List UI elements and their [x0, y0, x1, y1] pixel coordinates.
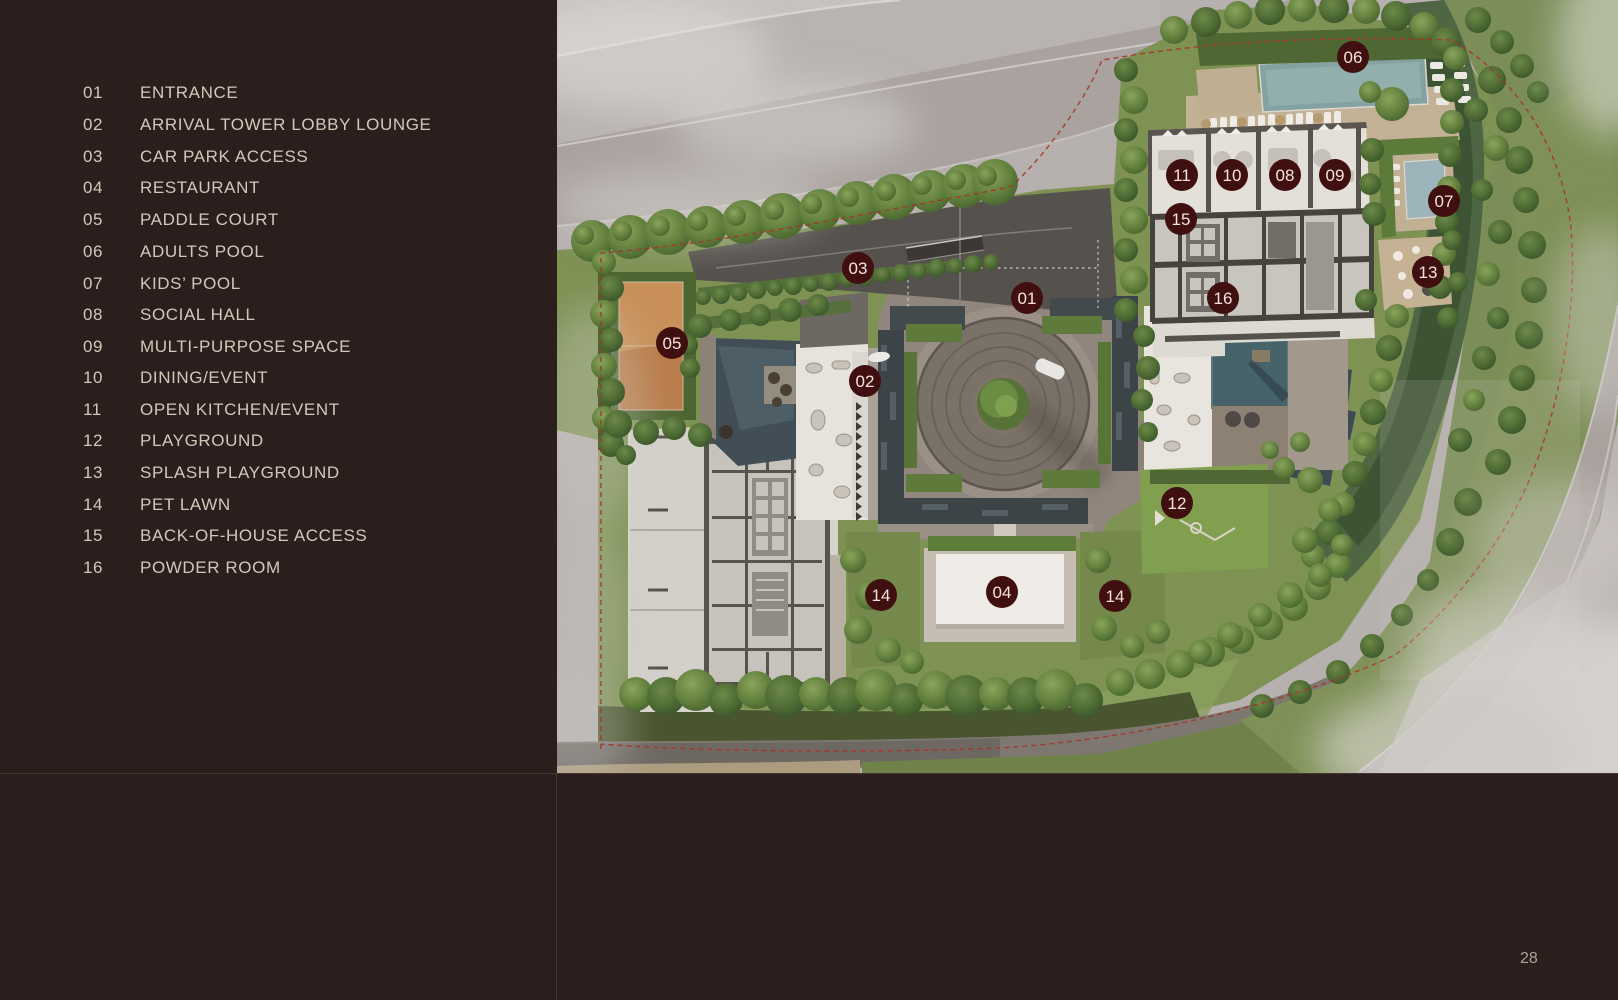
svg-text:16: 16 — [83, 558, 103, 577]
svg-text:PET LAWN: PET LAWN — [140, 495, 231, 514]
svg-text:POWDER ROOM: POWDER ROOM — [140, 558, 281, 577]
svg-text:MULTI-PURPOSE SPACE: MULTI-PURPOSE SPACE — [140, 337, 351, 356]
svg-text:10: 10 — [1223, 166, 1242, 185]
svg-text:06: 06 — [83, 242, 103, 261]
svg-text:SOCIAL HALL: SOCIAL HALL — [140, 305, 256, 324]
svg-text:11: 11 — [83, 400, 102, 419]
svg-text:05: 05 — [663, 334, 682, 353]
svg-text:01: 01 — [83, 83, 103, 102]
svg-text:15: 15 — [83, 526, 103, 545]
svg-text:08: 08 — [1276, 166, 1295, 185]
svg-text:RESTAURANT: RESTAURANT — [140, 178, 260, 197]
svg-text:07: 07 — [83, 274, 103, 293]
svg-text:16: 16 — [1214, 289, 1233, 308]
svg-text:04: 04 — [993, 583, 1012, 602]
svg-text:01: 01 — [1018, 289, 1037, 308]
svg-text:04: 04 — [83, 178, 103, 197]
svg-text:12: 12 — [1168, 494, 1187, 513]
svg-text:14: 14 — [872, 586, 891, 605]
svg-text:ADULTS POOL: ADULTS POOL — [140, 242, 264, 261]
svg-text:06: 06 — [1344, 48, 1363, 67]
svg-text:14: 14 — [1106, 587, 1125, 606]
svg-text:08: 08 — [83, 305, 103, 324]
svg-text:ENTRANCE: ENTRANCE — [140, 83, 238, 102]
svg-text:03: 03 — [83, 147, 103, 166]
svg-text:SPLASH PLAYGROUND: SPLASH PLAYGROUND — [140, 463, 340, 482]
svg-text:14: 14 — [83, 495, 103, 514]
svg-text:DINING/EVENT: DINING/EVENT — [140, 368, 268, 387]
svg-text:ARRIVAL TOWER LOBBY LOUNGE: ARRIVAL TOWER LOBBY LOUNGE — [140, 115, 431, 134]
svg-text:02: 02 — [83, 115, 103, 134]
svg-text:CAR PARK ACCESS: CAR PARK ACCESS — [140, 147, 308, 166]
svg-text:BACK-OF-HOUSE ACCESS: BACK-OF-HOUSE ACCESS — [140, 526, 367, 545]
svg-text:12: 12 — [83, 431, 103, 450]
svg-text:07: 07 — [1435, 192, 1454, 211]
svg-text:10: 10 — [83, 368, 103, 387]
svg-text:PLAYGROUND: PLAYGROUND — [140, 431, 264, 450]
svg-text:KIDS’ POOL: KIDS’ POOL — [140, 274, 241, 293]
svg-text:15: 15 — [1172, 210, 1191, 229]
svg-text:02: 02 — [856, 372, 875, 391]
svg-text:13: 13 — [1419, 263, 1438, 282]
svg-text:OPEN KITCHEN/EVENT: OPEN KITCHEN/EVENT — [140, 400, 340, 419]
svg-text:09: 09 — [1326, 166, 1345, 185]
svg-text:09: 09 — [83, 337, 103, 356]
svg-text:13: 13 — [83, 463, 103, 482]
svg-text:PADDLE COURT: PADDLE COURT — [140, 210, 279, 229]
svg-text:11: 11 — [1173, 166, 1191, 185]
svg-text:03: 03 — [849, 259, 868, 278]
svg-text:28: 28 — [1520, 950, 1538, 967]
svg-text:05: 05 — [83, 210, 103, 229]
